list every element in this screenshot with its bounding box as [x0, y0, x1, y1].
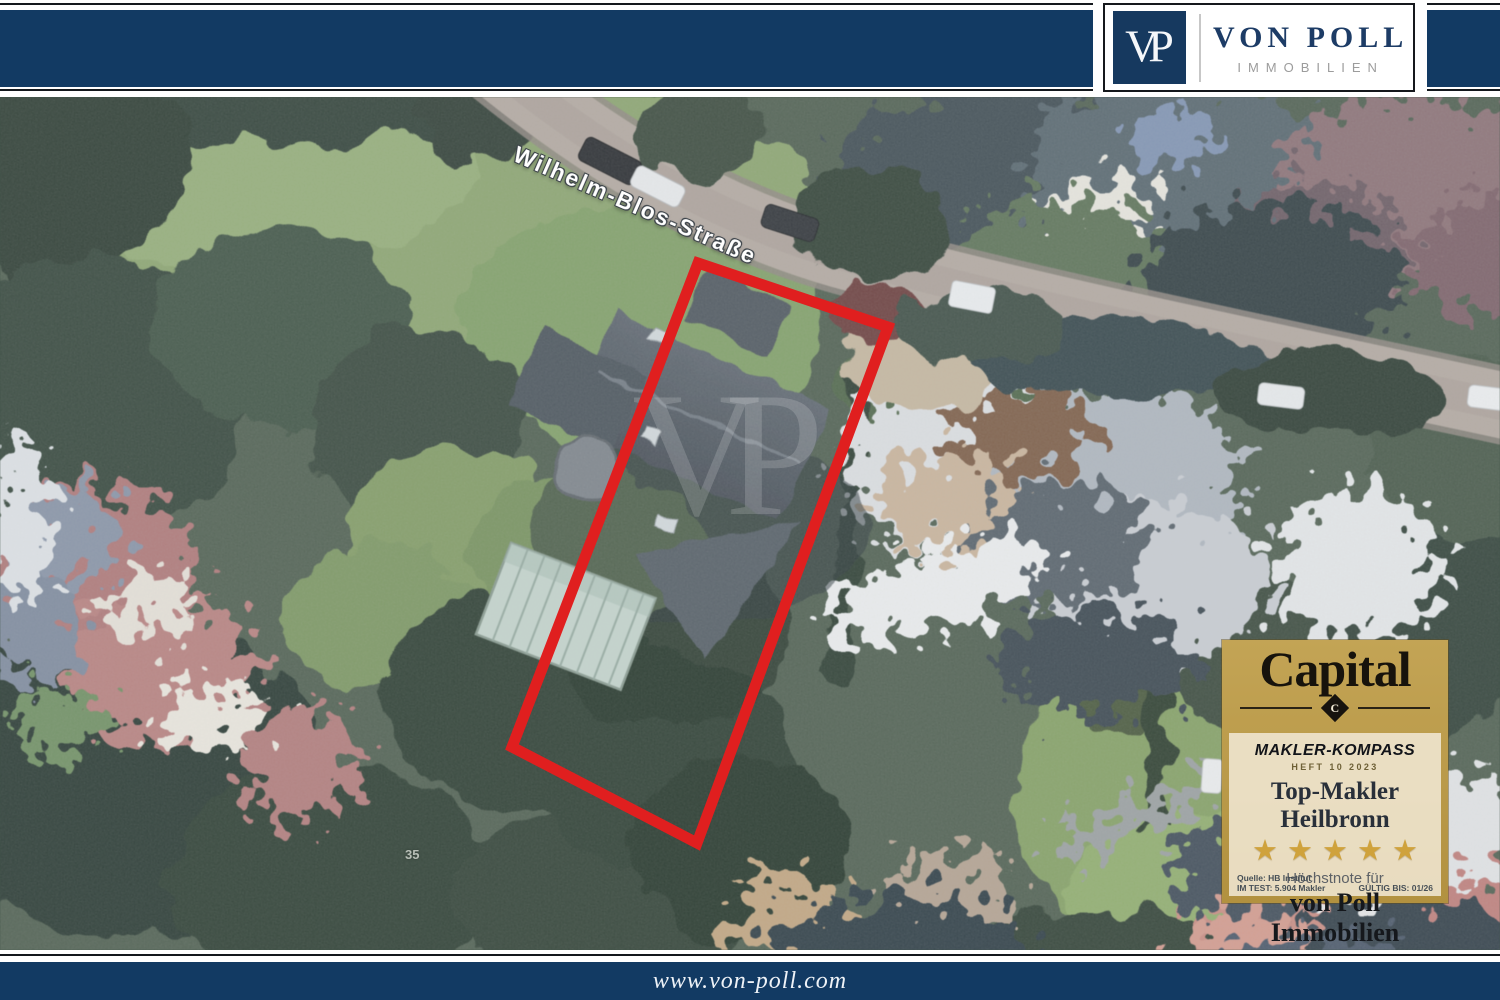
badge-gold-header: Capital C: [1222, 640, 1448, 733]
badge-recipient: von Poll Immobilien: [1229, 888, 1441, 948]
vp-monogram: VP: [1125, 19, 1174, 72]
footer-top-rule: [0, 954, 1500, 956]
footer-navy-band: www.von-poll.com: [0, 962, 1500, 1000]
vp-watermark: VP: [632, 365, 788, 543]
capital-c-diamond-icon: C: [1321, 694, 1349, 722]
badge-validity: GÜLTIG BIS: 01/26: [1359, 883, 1433, 893]
badge-issue-label: HEFT 10 2023: [1229, 762, 1441, 772]
vp-monogram-icon: VP: [1113, 11, 1186, 84]
capital-award-badge: Capital C MAKLER-KOMPASS HEFT 10 2023 To…: [1222, 640, 1448, 903]
header-bar: VP VON POLL IMMOBILIEN: [0, 0, 1500, 97]
badge-award-title: Top-Makler Heilbronn: [1229, 778, 1441, 834]
company-subtitle: IMMOBILIEN: [1213, 60, 1408, 75]
divider-line-left: [1240, 707, 1312, 709]
logo-divider: [1199, 14, 1201, 82]
house-number-label: 35: [405, 847, 419, 862]
company-name: VON POLL: [1213, 21, 1408, 55]
badge-source-line1: Quelle: HB Institut: [1237, 873, 1325, 883]
footer-bar: www.von-poll.com: [0, 950, 1500, 1000]
website-url: www.von-poll.com: [0, 962, 1500, 1000]
badge-program-title: MAKLER-KOMPASS: [1229, 742, 1441, 760]
badge-source-line2: IM TEST: 5.904 Makler: [1237, 883, 1325, 893]
badge-fineprint: Quelle: HB Institut IM TEST: 5.904 Makle…: [1237, 873, 1433, 893]
badge-source: Quelle: HB Institut IM TEST: 5.904 Makle…: [1237, 873, 1325, 893]
satellite-photo: Wilhelm-Blos-Straße 35 VP Capital C MAKL…: [0, 97, 1500, 950]
capital-logo: Capital: [1222, 642, 1448, 697]
divider-line-right: [1358, 707, 1430, 709]
badge-body-panel: MAKLER-KOMPASS HEFT 10 2023 Top-Makler H…: [1229, 733, 1441, 896]
logo-wordmark: VON POLL IMMOBILIEN: [1213, 21, 1408, 75]
badge-divider: C: [1222, 698, 1448, 718]
capital-c-mark: C: [1331, 700, 1340, 715]
five-star-rating-icon: ★★★★★: [1229, 835, 1441, 868]
company-logo: VP VON POLL IMMOBILIEN: [1103, 3, 1415, 92]
